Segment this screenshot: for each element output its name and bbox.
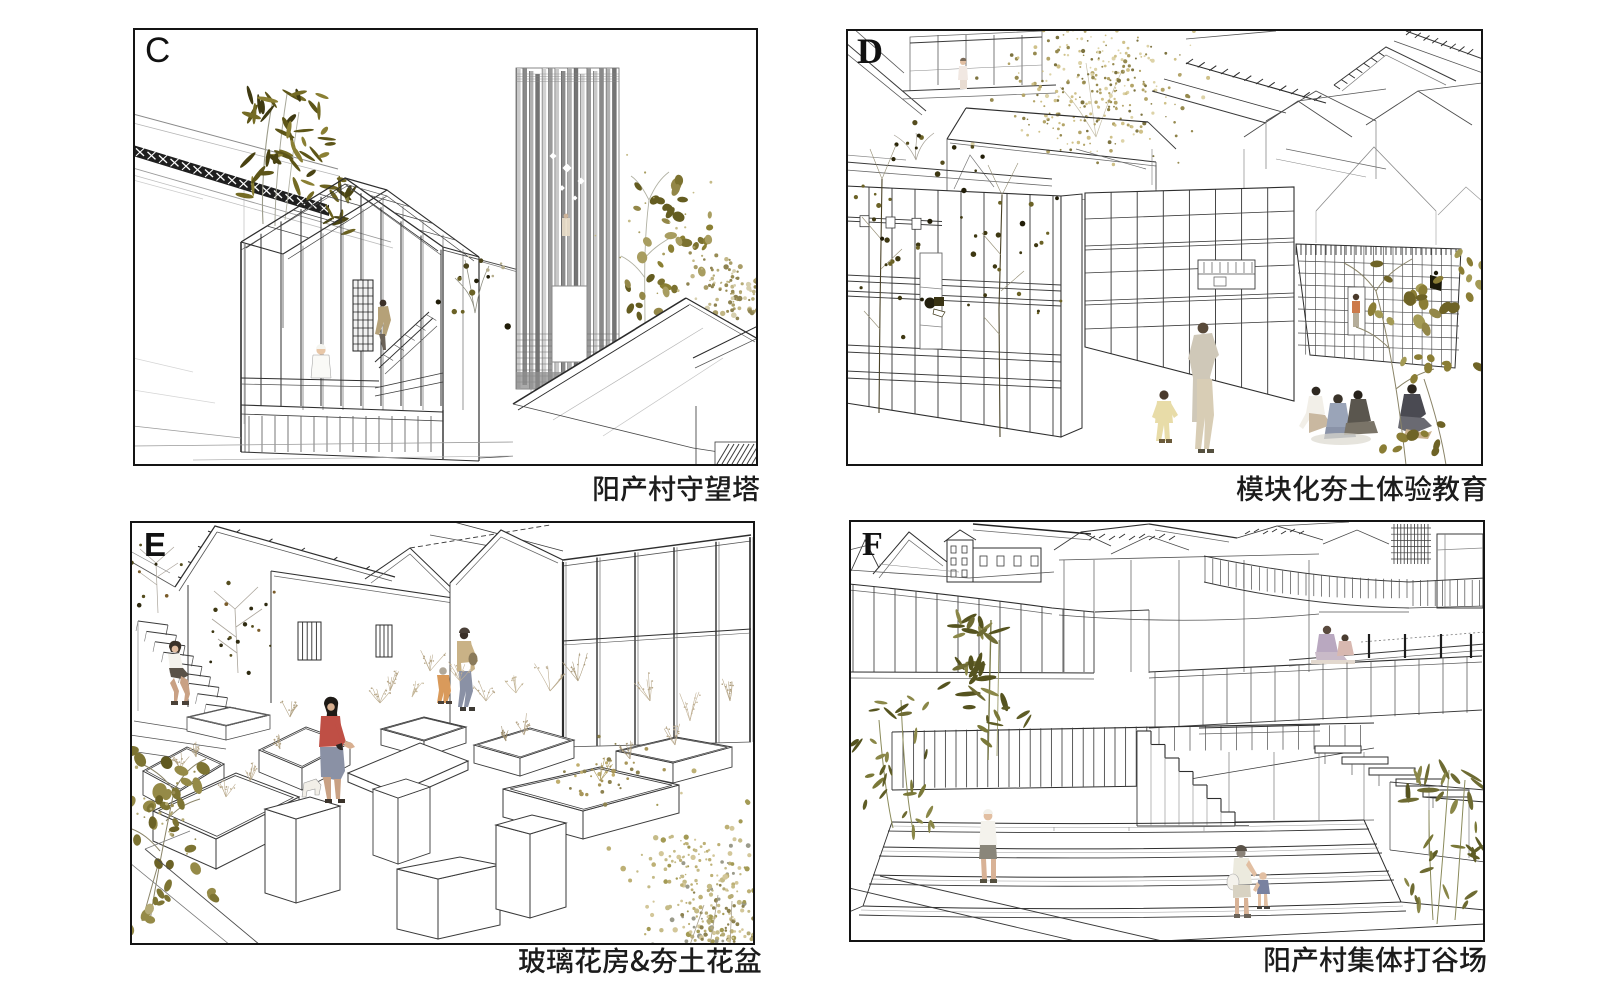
svg-text:F: F — [862, 526, 883, 563]
svg-text:D: D — [857, 31, 883, 71]
svg-text:E: E — [144, 526, 166, 563]
svg-text:C: C — [145, 31, 170, 70]
